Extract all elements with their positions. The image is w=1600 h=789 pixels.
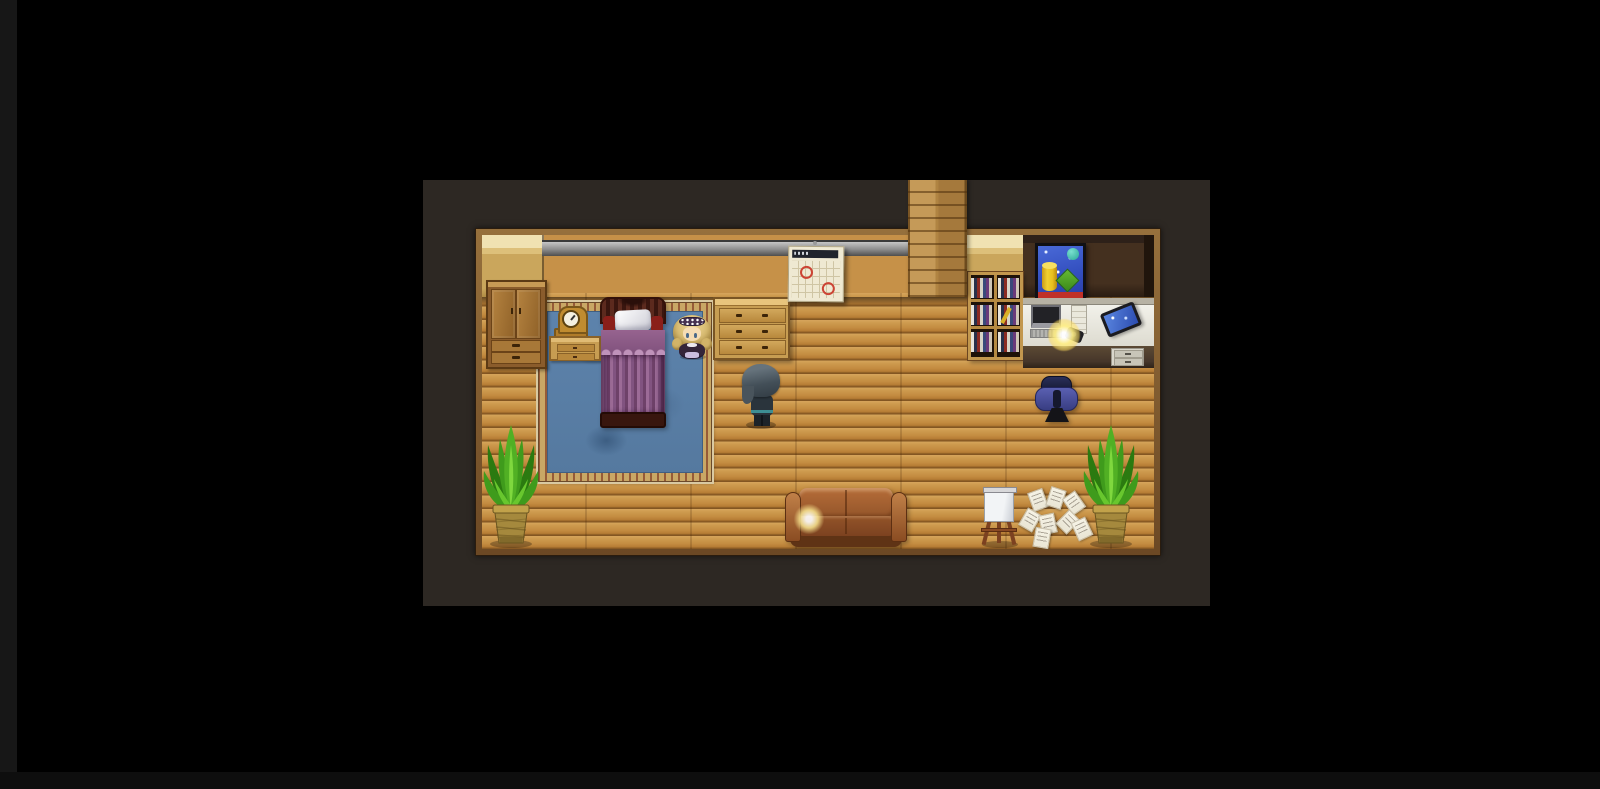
wardrobe-drawer: [491, 340, 541, 352]
desk-drawer: [1114, 358, 1143, 366]
window-edge-left: [0, 0, 17, 789]
bookshelf-shelf: [971, 326, 1020, 329]
easel[interactable]: [978, 487, 1020, 549]
calendar-body: [788, 246, 845, 303]
desk-drawer: [1114, 350, 1143, 358]
dresser[interactable]: [713, 297, 790, 360]
npc-headband: [679, 317, 705, 326]
bed-pillow: [614, 309, 651, 332]
bookshelf-books: [971, 276, 993, 298]
calendar-marked-day: [822, 282, 835, 295]
bookshelf-shelf: [971, 299, 1020, 302]
room-interior: [482, 235, 1154, 549]
npc-apron: [685, 352, 699, 358]
painting-art: [1038, 246, 1083, 298]
room: [475, 228, 1161, 556]
clock-face: [562, 310, 580, 328]
window-edge-bottom: [0, 772, 1600, 789]
chimney-wall-column: [908, 180, 967, 297]
player-character[interactable]: [740, 363, 782, 430]
wardrobe[interactable]: [486, 280, 547, 369]
dresser-drawer: [719, 324, 786, 339]
wall-calendar[interactable]: [788, 241, 842, 301]
abstract-painting[interactable]: [1035, 243, 1086, 301]
bed-blanket-ruffle: [601, 330, 665, 357]
npc-face: [683, 327, 701, 341]
calendar-marked-day: [800, 266, 813, 279]
bookshelf-books: [998, 330, 1020, 352]
game-viewport[interactable]: [423, 180, 1210, 606]
wardrobe-top: [488, 282, 545, 287]
dresser-drawer: [719, 340, 786, 355]
wardrobe-door-right: [516, 289, 541, 339]
nightstand-drawer: [557, 353, 595, 361]
npc-collar: [687, 343, 697, 347]
potted-plant-left[interactable]: [482, 415, 540, 549]
easel-crossbar: [981, 528, 1017, 532]
couch-armrest: [891, 492, 907, 542]
office-desk[interactable]: [1023, 298, 1154, 368]
couch[interactable]: [785, 488, 907, 547]
painting-yellow-cylinder: [1042, 264, 1057, 291]
mantel-clock[interactable]: [554, 306, 588, 338]
plant-graphic: [482, 415, 540, 549]
bookshelf-books: [971, 303, 993, 325]
painting-teal-orb: [1067, 248, 1079, 260]
bookshelf[interactable]: [968, 272, 1023, 360]
couch-light-reflection: [791, 502, 827, 536]
easel-canvas: [984, 489, 1014, 522]
npc-girl[interactable]: [672, 312, 712, 360]
paper-sheet: [1032, 527, 1051, 549]
dresser-drawer: [719, 308, 786, 323]
npc-eye: [686, 333, 689, 338]
desk-drawer-pedestal: [1111, 348, 1144, 366]
plant-graphic: [1082, 415, 1140, 549]
player-hair: [742, 364, 780, 397]
calendar-header: [792, 250, 838, 258]
player-legs: [754, 415, 770, 426]
npc-eye: [694, 333, 697, 338]
desk-lamp-glow[interactable]: [1045, 317, 1083, 353]
bookshelf-books: [971, 330, 993, 352]
bookshelf-books: [998, 276, 1020, 298]
player-body: [751, 395, 773, 416]
bookshelf-divider: [994, 275, 997, 357]
bed-footboard: [600, 412, 666, 428]
bed[interactable]: [600, 297, 666, 428]
bed-blanket-stripes: [601, 355, 665, 414]
potted-plant-right[interactable]: [1082, 415, 1140, 549]
wardrobe-drawer: [491, 352, 541, 364]
office-chair[interactable]: [1035, 376, 1078, 422]
wall-grey-rail: [542, 240, 908, 256]
nightstand[interactable]: [549, 336, 601, 361]
painting-green-cube: [1055, 268, 1079, 292]
wardrobe-door-left: [491, 289, 516, 339]
nightstand-drawer: [557, 344, 595, 352]
chair-back: [1035, 387, 1078, 411]
calendar-pin: [813, 241, 817, 245]
